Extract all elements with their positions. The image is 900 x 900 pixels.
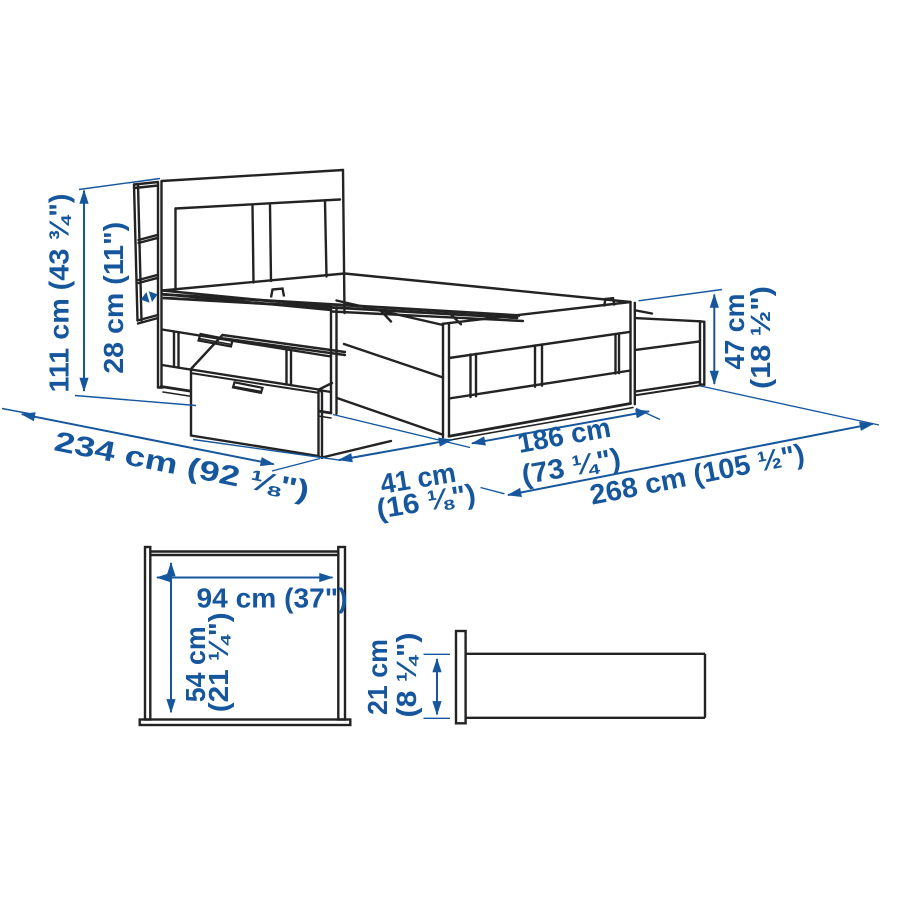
svg-text:(21 ¼"): (21 ¼") xyxy=(203,612,234,712)
svg-text:28 cm (11"): 28 cm (11") xyxy=(98,222,129,374)
svg-text:111 cm (43 ¾"): 111 cm (43 ¾") xyxy=(44,194,75,393)
svg-text:21 cm: 21 cm xyxy=(362,639,393,715)
svg-text:268 cm (105 ½"): 268 cm (105 ½") xyxy=(587,438,807,511)
svg-text:94 cm (37"): 94 cm (37") xyxy=(197,583,348,614)
svg-text:(18 ½"): (18 ½") xyxy=(745,286,776,389)
svg-text:(8 ¼"): (8 ¼") xyxy=(391,633,422,718)
